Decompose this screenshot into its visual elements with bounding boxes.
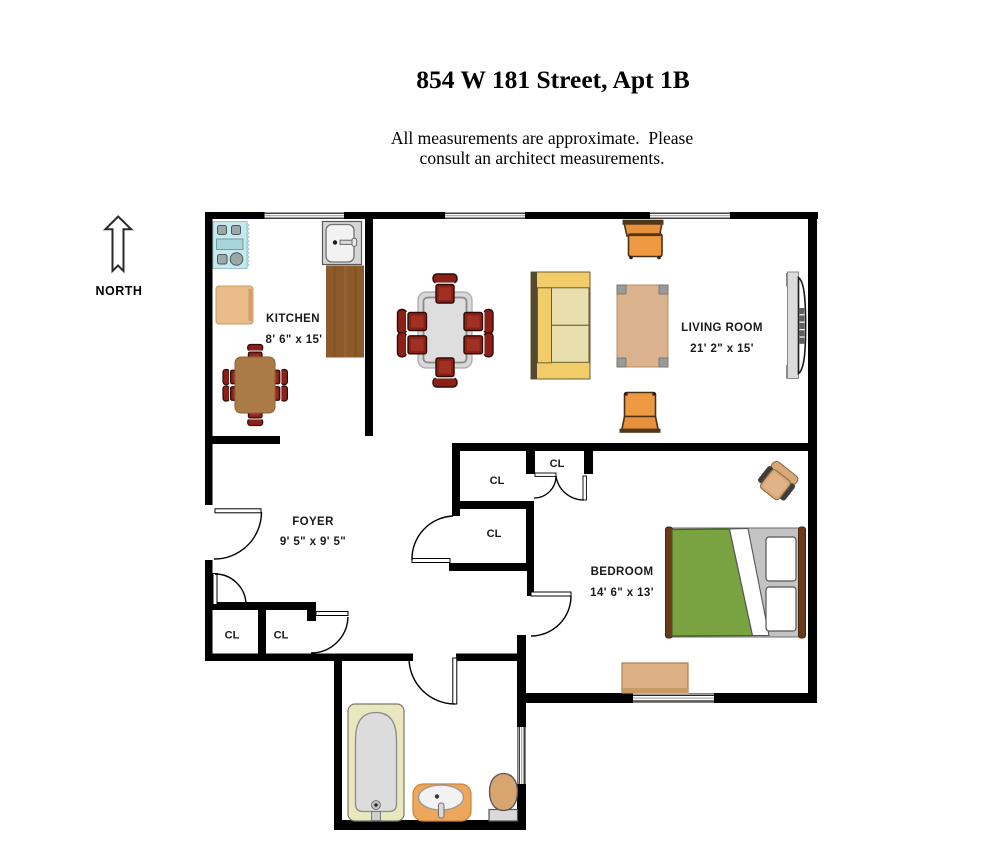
svg-text:21' 2" x 15': 21' 2" x 15' [690, 343, 754, 355]
svg-text:854 W 181 Street, Apt 1B: 854 W 181 Street, Apt 1B [416, 65, 689, 94]
svg-text:KITCHEN: KITCHEN [266, 313, 320, 325]
svg-text:8' 6" x 15': 8' 6" x 15' [266, 334, 323, 346]
svg-text:FOYER: FOYER [292, 516, 334, 528]
svg-text:All measurements are approxima: All measurements are approximate. Please [391, 128, 693, 148]
svg-text:BEDROOM: BEDROOM [591, 566, 654, 578]
svg-text:CL: CL [225, 630, 240, 642]
svg-text:CL: CL [550, 458, 565, 470]
svg-text:LIVING ROOM: LIVING ROOM [681, 322, 763, 334]
svg-text:CL: CL [487, 528, 502, 540]
svg-text:consult an architect measureme: consult an architect measurements. [420, 148, 665, 168]
svg-text:CL: CL [274, 630, 289, 642]
svg-text:9' 5" x 9' 5": 9' 5" x 9' 5" [280, 536, 346, 548]
svg-text:CL: CL [490, 475, 505, 487]
svg-text:NORTH: NORTH [96, 284, 143, 298]
svg-text:14' 6" x 13': 14' 6" x 13' [590, 587, 654, 599]
